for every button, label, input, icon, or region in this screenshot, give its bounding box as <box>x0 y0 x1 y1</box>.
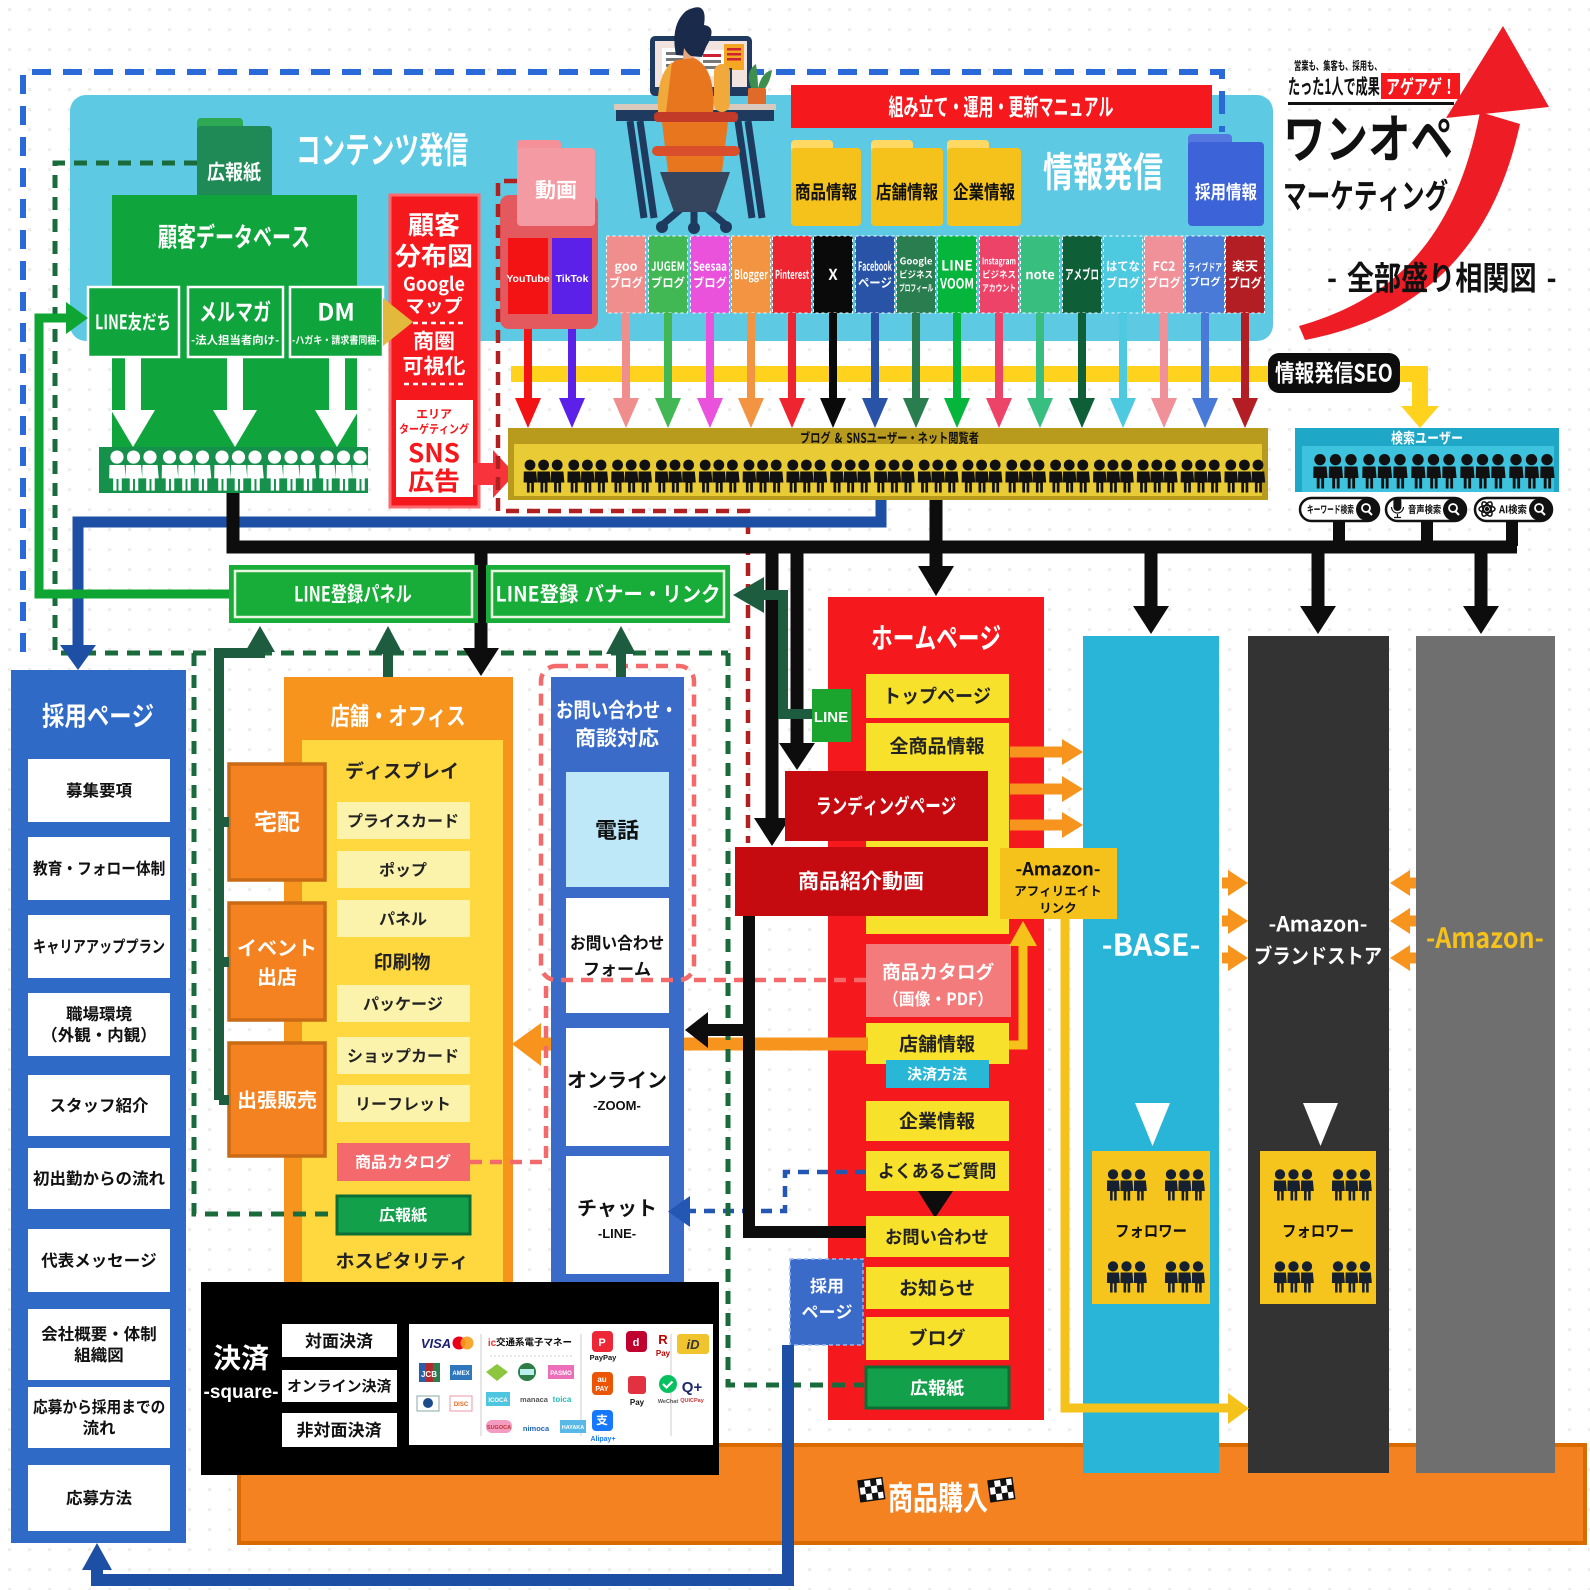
svg-text:YouTube: YouTube <box>506 273 550 285</box>
svg-text:iD: iD <box>687 1337 701 1352</box>
svg-text:HAYAKA: HAYAKA <box>562 1425 585 1431</box>
svg-text:AMEX: AMEX <box>452 1371 469 1377</box>
svg-text:manaca: manaca <box>520 1395 549 1404</box>
svg-text:LINE: LINE <box>814 709 848 726</box>
svg-text:P: P <box>598 1337 605 1349</box>
svg-text:-LINE-: -LINE- <box>598 1226 636 1241</box>
svg-text:Alipay+: Alipay+ <box>590 1436 615 1443</box>
svg-text:DISC: DISC <box>454 1402 469 1408</box>
svg-text:Pay: Pay <box>630 1398 645 1407</box>
svg-text:R: R <box>658 1332 668 1347</box>
svg-text:Q+: Q+ <box>682 1379 703 1396</box>
svg-text:ICOCA: ICOCA <box>488 1398 508 1404</box>
svg-text:TikTok: TikTok <box>556 273 589 285</box>
svg-text:-square-: -square- <box>204 1382 279 1403</box>
svg-text:au: au <box>597 1375 606 1384</box>
svg-text:VISA: VISA <box>421 1336 451 1351</box>
svg-text:Pay: Pay <box>656 1349 671 1358</box>
svg-text:-ZOOM-: -ZOOM- <box>593 1098 641 1113</box>
svg-text:PAY: PAY <box>595 1386 609 1393</box>
svg-text:JCB: JCB <box>421 1370 437 1379</box>
svg-text:ic: ic <box>488 1338 497 1349</box>
svg-text:toica: toica <box>553 1395 572 1404</box>
svg-text:nimoca: nimoca <box>523 1424 550 1433</box>
svg-text:PayPay: PayPay <box>590 1353 618 1362</box>
svg-text:PASMO: PASMO <box>550 1371 572 1377</box>
svg-text:QUICPay: QUICPay <box>680 1398 704 1404</box>
svg-text:WeChat: WeChat <box>658 1399 679 1405</box>
svg-text:SUGOCA: SUGOCA <box>487 1425 511 1431</box>
svg-text:d: d <box>633 1337 640 1349</box>
